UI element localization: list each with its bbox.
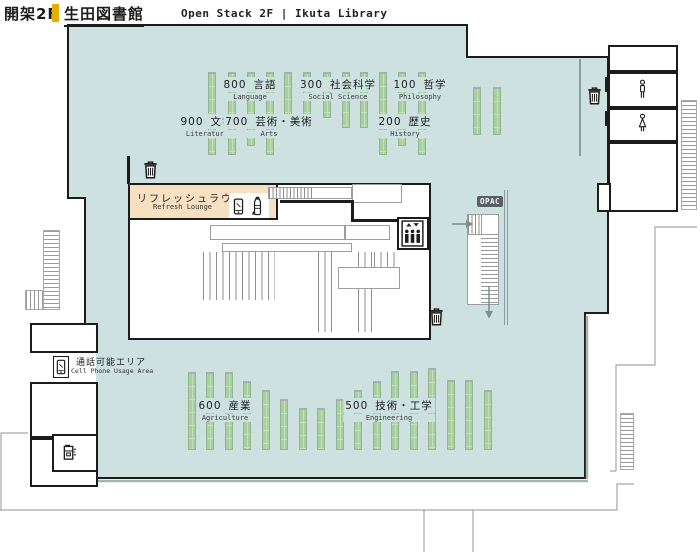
escalator-lower-landing: [345, 225, 390, 240]
void-hatch-lines: [318, 252, 333, 332]
inner-wall: [351, 219, 397, 222]
drink-bottle-icon: [251, 196, 264, 216]
section-name-jp: 産業: [229, 400, 252, 412]
room-left-b: [30, 382, 98, 438]
section-label-200: 200歴史 History: [376, 114, 433, 138]
mobile-phone-icon: [56, 359, 66, 375]
section-name-en: Social Science: [298, 93, 378, 101]
title-accent-bar: [52, 4, 59, 22]
escalator-lower: [210, 225, 345, 240]
trash-icon: [143, 161, 158, 179]
room-top-right: [608, 45, 678, 72]
inner-wall: [280, 200, 353, 203]
section-name-jp: 哲学: [424, 79, 447, 91]
opac-badge: OPAC: [477, 196, 503, 207]
page-title-library: 生田図書館: [64, 3, 144, 27]
exterior-staircase-right: [681, 100, 697, 210]
trash-icon: [429, 308, 444, 326]
bookshelf: [280, 399, 288, 450]
section-name-jp: 芸術・美術: [255, 116, 313, 128]
bookshelf: [473, 87, 481, 135]
room-right-large: [608, 142, 678, 212]
section-name-en: Arts: [223, 130, 315, 138]
section-name-jp: 社会科学: [330, 79, 376, 91]
section-code: 300: [300, 79, 323, 91]
escalator-housing: [222, 243, 352, 252]
section-code: 600: [198, 400, 221, 412]
section-code: 900: [180, 116, 203, 128]
section-code: 100: [393, 79, 416, 91]
bookshelf: [447, 380, 455, 450]
library-floor-map: 開架2F 生田図書館 Open Stack 2F | Ikuta Library…: [0, 0, 700, 560]
section-name-en: Language: [221, 93, 278, 101]
section-label-500: 500技術・工学 Engineering: [343, 398, 435, 422]
section-label-600: 600産業 Agriculture: [196, 398, 253, 422]
bookshelf: [493, 87, 501, 135]
section-label-100: 100哲学 Philosophy: [391, 77, 448, 101]
wall-line: [579, 59, 581, 156]
bookshelf: [317, 408, 325, 450]
section-name-jp: 技術・工学: [375, 400, 433, 412]
mobile-phone-icon: [233, 198, 244, 215]
section-label-700: 700芸術・美術 Arts: [223, 114, 315, 138]
section-code: 500: [345, 400, 368, 412]
inner-wall: [127, 156, 130, 184]
water-heater-icon: [62, 444, 77, 462]
bookshelf: [262, 390, 270, 450]
section-name-en: Philosophy: [391, 93, 448, 101]
section-code: 800: [223, 79, 246, 91]
void-hatch-strip: [338, 267, 400, 289]
trash-icon: [587, 87, 602, 105]
void-hatch-lines: [203, 252, 275, 300]
refresh-lounge-label-en: Refresh Lounge: [153, 203, 212, 211]
bookshelf: [484, 390, 492, 450]
stair-treads: [468, 215, 482, 235]
cell-phone-label-en: Cell Phone Usage Area: [71, 367, 153, 375]
page-title-english: Open Stack 2F | Ikuta Library: [181, 7, 388, 20]
escalator-treads: [269, 188, 313, 198]
bookshelf: [188, 372, 196, 450]
room-left-a: [30, 323, 98, 353]
bookshelf: [284, 72, 292, 117]
room-right-notch: [597, 183, 611, 212]
stair-treads: [481, 234, 498, 304]
section-label-300: 300社会科学 Social Science: [298, 77, 378, 101]
section-name-en: History: [376, 130, 433, 138]
elevator-icon: [401, 220, 424, 247]
section-name-en: Engineering: [343, 414, 435, 422]
arrow-down-icon: [485, 311, 493, 319]
female-restroom-icon: [637, 113, 648, 134]
section-name-jp: 言語: [254, 79, 277, 91]
male-restroom-icon: [637, 79, 648, 100]
escalator-landing: [352, 184, 402, 203]
page-title-floor: 開架2F: [4, 3, 59, 24]
escalator-upper: [268, 187, 352, 199]
section-label-800: 800言語 Language: [221, 77, 278, 101]
door-mark: [605, 111, 608, 126]
void-hatch-lines: [358, 252, 373, 332]
exterior-staircase-bottom-right: [620, 413, 634, 470]
bookshelf: [299, 408, 307, 450]
section-name-en: Agriculture: [196, 414, 253, 422]
door-mark: [605, 77, 608, 92]
central-staircase: [467, 214, 499, 305]
void-hatch-lines: [374, 252, 396, 267]
exterior-staircase-left-landing: [25, 290, 44, 310]
exterior-staircase-left: [43, 230, 60, 310]
section-code: 700: [225, 116, 248, 128]
section-code: 200: [378, 116, 401, 128]
wall-line: [504, 190, 505, 325]
section-name-jp: 歴史: [409, 116, 432, 128]
wall-line: [507, 190, 508, 325]
bookshelf: [465, 380, 473, 450]
